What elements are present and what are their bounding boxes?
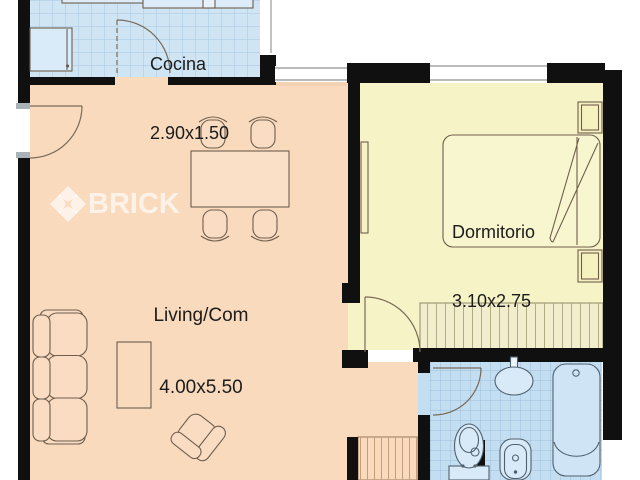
wall-living-bedroom [348, 83, 360, 283]
room-label-cocina: Cocina 2.90x1.50 [150, 7, 229, 191]
wall-bathroom-left-bottom [418, 415, 430, 480]
fridge [30, 28, 72, 71]
sofa [33, 310, 87, 444]
hall-closet [358, 437, 418, 480]
wall-kitchen-corner [260, 55, 276, 85]
wall-pier-bedroom-door [342, 283, 360, 303]
floorplan-canvas: Cocina 2.90x1.50 Living/Com 4.00x5.50 Do… [0, 0, 640, 480]
dormitorio-name: Dormitorio [452, 221, 535, 244]
wall-top-middle [347, 63, 430, 83]
brick-watermark-text: BRICK [88, 188, 180, 221]
wall-shelf [361, 142, 368, 233]
wall-bathroom-left-top [418, 362, 430, 373]
wall-bedroom-sw-corner [342, 350, 368, 368]
nightstand [578, 250, 602, 282]
bathroom-doorway-floor [418, 373, 430, 415]
wall-hall-left [347, 437, 358, 480]
cocina-name: Cocina [150, 53, 229, 76]
room-label-dormitorio: Dormitorio 3.10x2.75 [452, 175, 535, 359]
kitchen-counter [62, 0, 143, 3]
wall-right [603, 70, 622, 440]
bedroom-window [430, 63, 547, 83]
wall-kitchen-south-left [18, 77, 115, 85]
entry-door-opening [18, 103, 30, 158]
wall-left-upper [18, 0, 30, 103]
room-label-living: Living/Com 4.00x5.50 [141, 256, 261, 448]
living-name: Living/Com [141, 304, 261, 328]
living-window [275, 66, 347, 82]
nightstand [578, 102, 602, 133]
wall-left-lower [18, 158, 30, 480]
wall-top-right [547, 63, 605, 83]
bedroom-doorway-floor [348, 303, 360, 350]
cocina-dimensions: 2.90x1.50 [150, 122, 229, 145]
dormitorio-dimensions: 3.10x2.75 [452, 290, 535, 313]
bathtub [553, 364, 600, 476]
bidet [500, 439, 531, 480]
living-dimensions: 4.00x5.50 [141, 376, 261, 400]
floorplan-drawing [0, 0, 640, 480]
